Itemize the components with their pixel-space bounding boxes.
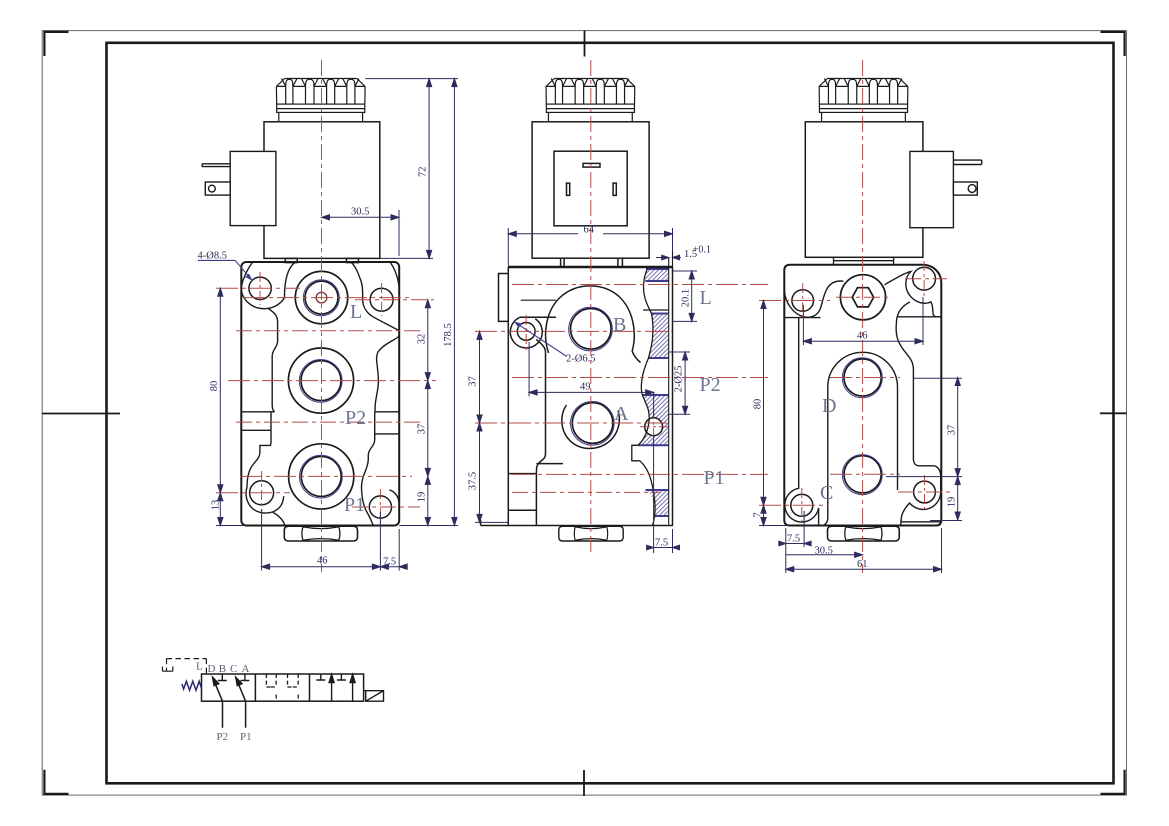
- svg-text:72: 72: [418, 167, 429, 178]
- svg-text:D: D: [208, 663, 216, 675]
- svg-text:C: C: [820, 482, 833, 504]
- svg-text:19: 19: [946, 497, 957, 508]
- svg-text:80: 80: [752, 399, 763, 410]
- svg-text:2-Ø6.5: 2-Ø6.5: [566, 354, 595, 365]
- svg-text:178.5: 178.5: [443, 323, 454, 347]
- svg-text:37: 37: [468, 376, 479, 387]
- svg-text:49: 49: [580, 382, 591, 393]
- svg-text:C: C: [230, 663, 237, 675]
- svg-text:7.5: 7.5: [383, 557, 396, 568]
- svg-text:37.5: 37.5: [468, 472, 479, 490]
- svg-text:7.5: 7.5: [787, 534, 800, 545]
- svg-text:P1: P1: [240, 731, 252, 743]
- svg-text:7: 7: [752, 512, 763, 517]
- svg-text:46: 46: [857, 331, 868, 342]
- svg-text:P2: P2: [700, 374, 721, 396]
- svg-text:37: 37: [946, 425, 957, 436]
- svg-text:D: D: [822, 395, 836, 417]
- svg-text:80: 80: [209, 381, 220, 392]
- svg-text:30.5: 30.5: [815, 546, 833, 557]
- svg-text:7.5: 7.5: [655, 538, 668, 549]
- svg-text:+0.1: +0.1: [693, 245, 711, 256]
- svg-text:P1: P1: [704, 467, 725, 489]
- svg-text:37: 37: [416, 424, 427, 435]
- svg-text:46: 46: [317, 556, 328, 567]
- svg-text:64: 64: [584, 225, 595, 236]
- svg-text:19: 19: [416, 492, 427, 503]
- svg-text:61: 61: [857, 559, 868, 570]
- svg-text:L: L: [700, 287, 712, 309]
- svg-text:B: B: [613, 314, 626, 336]
- svg-text:A: A: [614, 403, 629, 425]
- svg-text:L: L: [350, 301, 362, 323]
- svg-text:13: 13: [211, 500, 222, 511]
- svg-text:32: 32: [416, 334, 427, 345]
- svg-text:P2: P2: [345, 407, 366, 429]
- svg-text:30.5: 30.5: [351, 207, 369, 218]
- svg-text:4-Ø8.5: 4-Ø8.5: [198, 251, 227, 262]
- svg-text:20.1: 20.1: [680, 289, 691, 307]
- svg-text:B: B: [219, 663, 226, 675]
- svg-text:P1: P1: [344, 494, 365, 516]
- svg-text:P2: P2: [217, 731, 229, 743]
- svg-text:L: L: [196, 661, 203, 673]
- svg-text:2-Ø25: 2-Ø25: [674, 366, 685, 393]
- svg-text:A: A: [242, 663, 250, 675]
